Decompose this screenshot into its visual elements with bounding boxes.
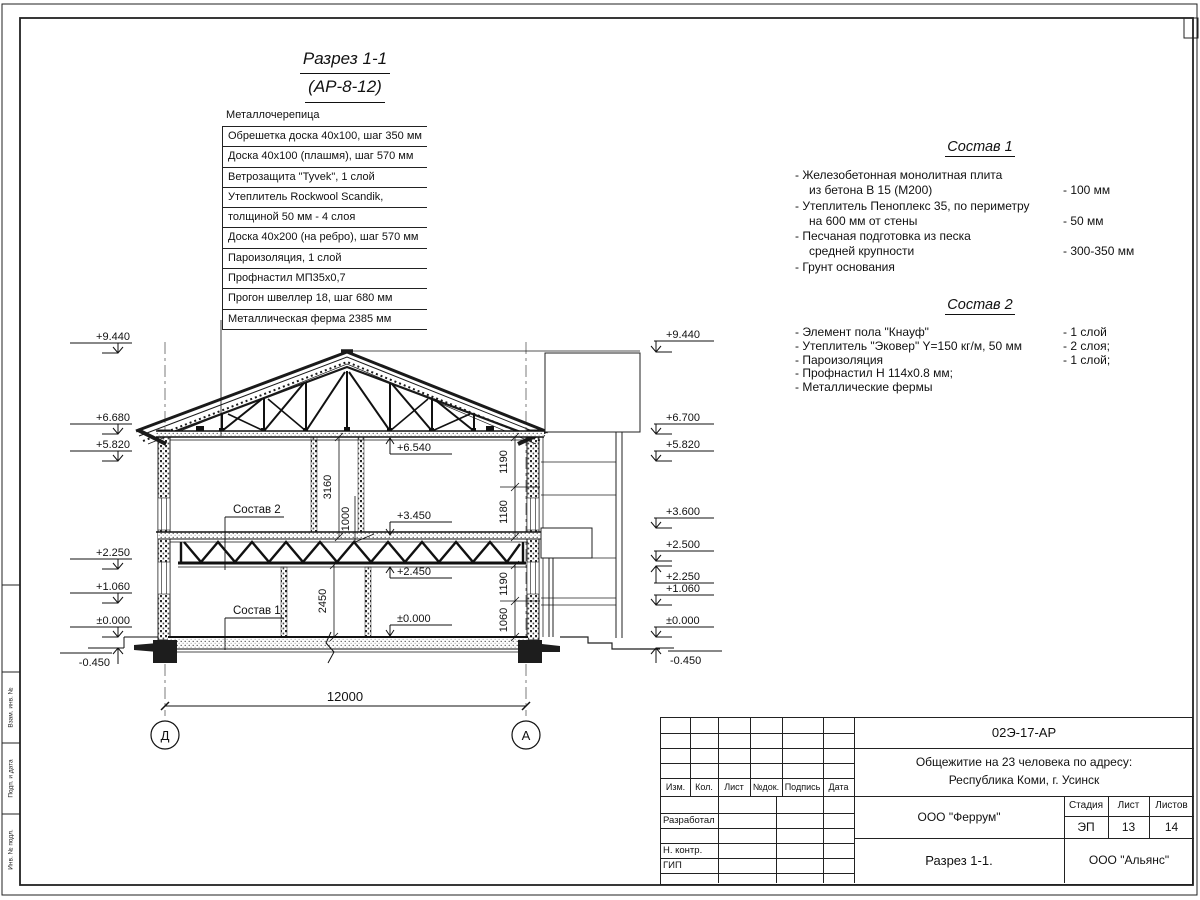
tb-header-kol: Кол. <box>690 778 718 796</box>
title-block: Изм. Кол. Лист №док. Подпись Дата Разраб… <box>660 717 1193 885</box>
callout-sostav1-label: Состав 1 <box>233 605 281 617</box>
roof-layer-row: Прогон швеллер 18, шаг 680 мм <box>223 289 427 309</box>
level-left-9440: +9.440 <box>96 331 130 343</box>
level-right-m0450: -0.450 <box>670 655 701 667</box>
sostav1-item-text: - Железобетонная монолитная плита <box>795 168 1002 182</box>
sostav1-title: Состав 1 <box>945 139 1014 157</box>
page-title-line2: (АР-8-12) <box>305 74 385 102</box>
sostav2-item-text: - Утеплитель "Эковер" Y=150 кг/м, 50 мм <box>795 339 1022 353</box>
sostav2-item-text: - Элемент пола "Кнауф" <box>795 325 929 339</box>
tb-sheet-value: 13 <box>1108 816 1149 838</box>
sostav1-item-text: на 600 мм от стены <box>809 214 917 228</box>
roof-layers-label: Металлочерепица <box>226 109 320 121</box>
roof-layer-row: Доска 40х200 (на ребро), шаг 570 мм <box>223 228 427 248</box>
tb-doc-number: 02Э-17-АР <box>854 718 1194 748</box>
sostav1-item-value: - 300-350 мм <box>1063 244 1134 259</box>
dim-texts: 1190 1180 1190 1060 3160 1000 2450 <box>317 450 510 632</box>
callout-sostav2-label: Состав 2 <box>233 504 281 516</box>
axis-bubble-right: А <box>512 721 540 749</box>
span-dimension: 12000 <box>161 689 530 710</box>
tb-header-ndok: №док. <box>750 778 782 796</box>
level-right-1060: +1.060 <box>666 583 700 595</box>
elevation-texts-left: +9.440 +6.680 +5.820 +2.250 +1.060 ±0.00… <box>79 331 130 669</box>
tb-sheets-value: 14 <box>1149 816 1194 838</box>
roof-layer-row: Профнастил МП35х0,7 <box>223 269 427 289</box>
dim-12000: 12000 <box>327 689 363 704</box>
dim-1180: 1180 <box>498 500 510 524</box>
level-right-0000: ±0.000 <box>666 615 700 627</box>
roof-layer-row: Металлическая ферма 2385 мм <box>223 310 427 330</box>
tb-sheet-label: Лист <box>1108 796 1149 816</box>
sostav1-item-text: - Грунт основания <box>795 260 895 274</box>
tb-org2: ООО "Альянс" <box>1064 838 1194 883</box>
level-left-m0450: -0.450 <box>79 657 110 669</box>
dim-2450: 2450 <box>317 589 329 613</box>
tb-project-line2: Республика Коми, г. Усинск <box>854 770 1194 790</box>
level-right-2250: +2.250 <box>666 571 700 583</box>
level-left-2250: +2.250 <box>96 547 130 559</box>
sostav1-block: Состав 1 - Железобетонная монолитная пли… <box>795 139 1165 275</box>
frame-strip-label-vzam: Взам. инв. № <box>4 673 19 743</box>
level-right-9440: +9.440 <box>666 329 700 341</box>
drawing-sheet: Состав 2 Состав 1 +9.440 +6.680 +5.820 +… <box>0 0 1200 900</box>
sostav1-item-text: - Песчаная подготовка из песка <box>795 229 971 243</box>
frame-strip-label-podp: Подп. и дата <box>4 744 19 814</box>
sostav2-title: Состав 2 <box>945 297 1014 315</box>
sostav2-block: Состав 2 - Элемент пола "Кнауф"- 1 слой … <box>795 297 1165 395</box>
floor-truss <box>156 532 544 567</box>
sostav2-item-value: - 2 слоя; <box>1063 340 1110 354</box>
roof-layer-row: Утеплитель Rockwool Scandik, <box>223 188 427 208</box>
level-left-0000: ±0.000 <box>96 615 130 627</box>
axis-letter-right: А <box>522 728 531 743</box>
tb-stage-label: Стадия <box>1064 796 1108 816</box>
annex-porch <box>541 353 660 649</box>
tb-drawing-name: Разрез 1-1. <box>854 838 1064 883</box>
roof-truss-webs <box>222 371 474 431</box>
sostav2-item-value: - 1 слой <box>1063 326 1107 340</box>
roof-layer-row: Обрешетка доска 40х100, шаг 350 мм <box>223 127 427 147</box>
sostav1-item-value: - 50 мм <box>1063 214 1104 229</box>
tb-org1: ООО "Феррум" <box>854 796 1064 838</box>
roof-layer-row: Ветрозащита "Tyvek", 1 слой <box>223 168 427 188</box>
sostav1-item-value: - 100 мм <box>1063 183 1110 198</box>
level-right-5820: +5.820 <box>666 439 700 451</box>
level-left-6680: +6.680 <box>96 412 130 424</box>
tb-stage-value: ЭП <box>1064 816 1108 838</box>
frame-strip-label-inv: Инв. № подл. <box>4 815 19 885</box>
dim-1190b: 1190 <box>498 572 510 596</box>
elevation-texts-right: +9.440 +6.700 +5.820 +3.600 +2.500 +2.25… <box>666 329 701 667</box>
axis-bubble-left: Д <box>151 721 179 749</box>
roof-layer-row: Доска 40х100 (плашмя), шаг 570 мм <box>223 147 427 167</box>
sostav1-item-text: средней крупности <box>809 244 914 258</box>
sostav1-item-text: из бетона В 15 (М200) <box>809 183 932 197</box>
level-inner-6540: +6.540 <box>397 442 431 454</box>
tb-header-podpis: Подпись <box>782 778 823 796</box>
sostav2-item-text: - Металлические фермы <box>795 380 932 394</box>
tb-header-izm: Изм. <box>661 778 690 796</box>
tb-header-list: Лист <box>718 778 750 796</box>
roof-layer-row: толщиной 50 мм - 4 слоя <box>223 208 427 228</box>
page-title-line1: Разрез 1-1 <box>300 46 390 74</box>
attic-floor-band <box>156 431 544 440</box>
level-inner-2450: +2.450 <box>397 566 431 578</box>
sostav1-item-text: - Утеплитель Пеноплекс 35, по периметру <box>795 199 1030 213</box>
tb-role-razrabotal: Разработал <box>663 813 718 828</box>
level-inner-3450: +3.450 <box>397 510 431 522</box>
level-right-2500: +2.500 <box>666 539 700 551</box>
dim-1000: 1000 <box>340 507 352 531</box>
sostav2-item-text: - Профнастил Н 114х0.8 мм; <box>795 366 953 380</box>
tb-role-gip: ГИП <box>663 858 718 873</box>
dim-1190a: 1190 <box>498 450 510 474</box>
dim-3160: 3160 <box>322 475 334 499</box>
level-right-6700: +6.700 <box>666 412 700 424</box>
level-inner-0000: ±0.000 <box>397 613 431 625</box>
tb-header-data: Дата <box>823 778 854 796</box>
page-title: Разрез 1-1 (АР-8-12) <box>240 46 450 103</box>
level-left-1060: +1.060 <box>96 581 130 593</box>
dim-1060: 1060 <box>498 608 510 632</box>
sostav2-item-value: - 1 слой; <box>1063 354 1110 368</box>
tb-sheets-label: Листов <box>1149 796 1194 816</box>
tb-project-line1: Общежитие на 23 человека по адресу: <box>854 752 1194 772</box>
level-left-5820: +5.820 <box>96 439 130 451</box>
sostav2-item-text: - Пароизоляция <box>795 353 883 367</box>
axis-letter-left: Д <box>161 728 170 743</box>
roof-layers-table: Обрешетка доска 40х100, шаг 350 мм Доска… <box>222 126 427 330</box>
roof-layer-row: Пароизоляция, 1 слой <box>223 249 427 269</box>
tb-role-nkontr: Н. контр. <box>663 843 718 858</box>
level-right-3600: +3.600 <box>666 506 700 518</box>
